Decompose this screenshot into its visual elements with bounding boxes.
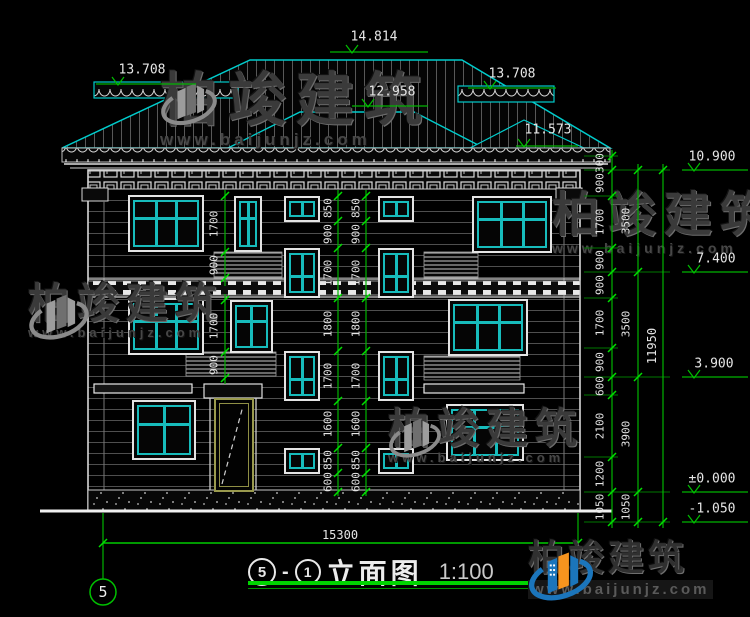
- railing-panel: [424, 252, 478, 278]
- dim: 900: [594, 173, 607, 193]
- window-bay2-3f: [234, 196, 262, 252]
- window-left-1f: [132, 400, 196, 460]
- dim: 1700: [208, 211, 221, 238]
- dim: 1800: [350, 311, 363, 338]
- dim: 850: [322, 450, 335, 470]
- dim: 850: [350, 198, 363, 218]
- dim: 900: [594, 250, 607, 270]
- dim-total-width: 15300: [322, 528, 358, 542]
- dim: 1700: [594, 310, 607, 337]
- door-canopy: [204, 384, 262, 398]
- dim: 3900: [620, 421, 633, 448]
- window-left-3f: [128, 195, 204, 252]
- left-pilaster-capital: [82, 188, 108, 201]
- axis-bubble-label: 5: [98, 583, 107, 601]
- stair-window: [284, 448, 320, 474]
- elevation-drawing: 柏竣建筑 www.baijunjz.com 柏竣建筑 www.baijunjz.…: [0, 0, 750, 617]
- dim: 1700: [322, 363, 335, 390]
- brand-logo-icon: [28, 283, 90, 349]
- dim: 1800: [322, 311, 335, 338]
- stair-window: [378, 196, 414, 222]
- railing-panel: [186, 352, 276, 376]
- roof-level-left: 13.708: [119, 63, 166, 78]
- dim: 900: [208, 255, 221, 275]
- stair-window: [378, 351, 414, 401]
- dim: 900: [594, 275, 607, 295]
- brand-logo: 柏竣建筑 www.baijunjz.com: [528, 540, 713, 599]
- roof-level-mid: 12.958: [369, 85, 416, 100]
- dim: 2100: [594, 413, 607, 440]
- greek-key-frieze: [88, 171, 580, 189]
- railing-panel: [214, 252, 282, 278]
- window-right-3f: [472, 196, 552, 253]
- dim: 1700: [208, 313, 221, 340]
- dim: 300: [594, 153, 607, 173]
- stair-window: [284, 196, 320, 222]
- balcony-slab: [94, 384, 192, 393]
- foundation-plinth: [88, 490, 580, 511]
- dim: 900: [208, 355, 221, 375]
- balcony-slab: [424, 384, 524, 393]
- dim: 1200: [594, 461, 607, 488]
- title-name: 立面图: [327, 552, 423, 592]
- dim: 900: [350, 224, 363, 244]
- watermark: 柏竣建筑 www.baijunjz.com: [388, 408, 584, 465]
- right-upper-eave: [458, 86, 554, 102]
- watermark: 柏竣建筑 www.baijunjz.com: [552, 192, 750, 256]
- level-label: 3.900: [694, 357, 733, 372]
- brand-logo-icon: [160, 72, 218, 134]
- dim: 1050: [620, 494, 633, 521]
- dim: 1700: [350, 260, 363, 287]
- dim: 600: [350, 472, 363, 492]
- dim: 3500: [620, 208, 633, 235]
- window-right-2f: [448, 299, 528, 356]
- drawing-title: 5 - 1 立面图 1:100: [248, 552, 494, 592]
- roof-level-ridge: 14.814: [351, 30, 398, 45]
- roof-level-right: 13.708: [489, 67, 536, 82]
- level-label: 7.400: [696, 252, 735, 267]
- dim: 1600: [350, 411, 363, 438]
- dim: 1700: [594, 209, 607, 236]
- dim: 600: [594, 376, 607, 396]
- dim: 900: [594, 352, 607, 372]
- level-label: -1.050: [689, 502, 736, 517]
- brand-logo-icon: [388, 408, 442, 466]
- stair-window: [284, 248, 320, 298]
- stair-window: [284, 351, 320, 401]
- roof-level-low: 11.573: [525, 123, 572, 138]
- dim: 3500: [620, 311, 633, 338]
- level-label: 10.900: [689, 150, 736, 165]
- railing-panel: [424, 356, 520, 380]
- dim: 900: [322, 224, 335, 244]
- dim: 850: [322, 198, 335, 218]
- dim-total-height: 11950: [645, 328, 659, 364]
- dim: 1700: [350, 363, 363, 390]
- entrance-door: [214, 398, 254, 492]
- window-bay2-2f: [230, 300, 273, 353]
- dim: 850: [350, 450, 363, 470]
- dim: 600: [322, 472, 335, 492]
- eave-tile-edge: [62, 148, 610, 162]
- dim: 1050: [594, 494, 607, 521]
- stair-window: [378, 248, 414, 298]
- dim: 1600: [322, 411, 335, 438]
- level-label: ±0.000: [689, 472, 736, 487]
- dim: 1700: [322, 260, 335, 287]
- watermark: 柏竣建筑 www.baijunjz.com: [28, 283, 224, 340]
- brand-logo-icon: [528, 540, 594, 610]
